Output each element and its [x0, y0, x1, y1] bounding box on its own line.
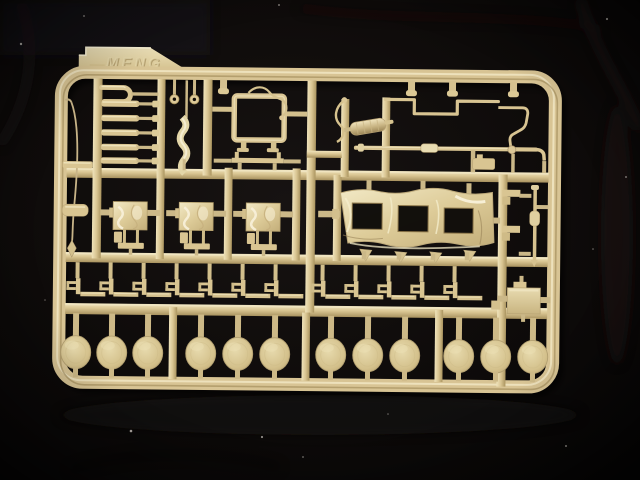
sprue-photo-canvas: MENG MENG [0, 0, 640, 480]
photo-vignette [0, 0, 640, 480]
photo-of-model-kit-sprue: MENG MENG [0, 0, 640, 480]
